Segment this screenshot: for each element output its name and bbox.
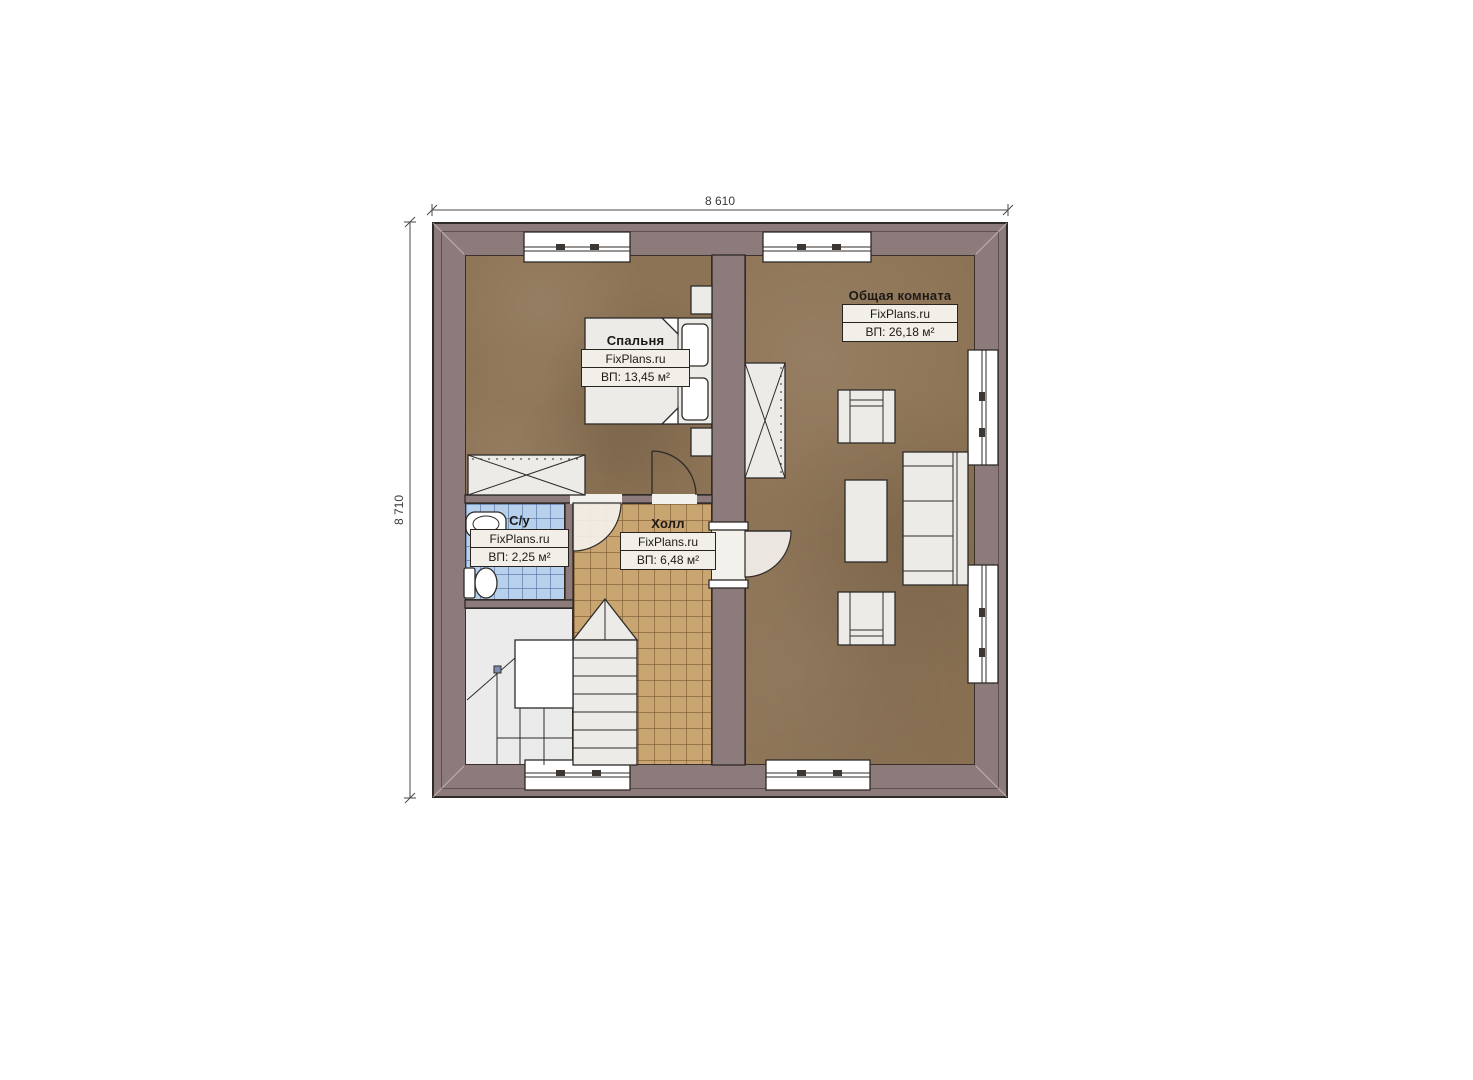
hall-name: Холл — [651, 516, 684, 531]
dimension-label-left: 8 710 — [392, 495, 406, 525]
bath-name: С/у — [509, 513, 530, 528]
bedroom-name: Спальня — [607, 333, 665, 348]
brand-label: FixPlans.ru — [581, 349, 690, 369]
living-name: Общая комната — [849, 288, 952, 303]
bedroom-area-label: ВП: 13,45 м² — [581, 367, 690, 387]
room-label-bedroom: Спальня FixPlans.ru ВП: 13,45 м² — [585, 333, 686, 387]
room-label-living: Общая комната FixPlans.ru ВП: 26,18 м² — [846, 288, 954, 342]
room-label-bath: С/у FixPlans.ru ВП: 2,25 м² — [474, 513, 565, 567]
living-area-label: ВП: 26,18 м² — [842, 322, 958, 342]
hall-area-label: ВП: 6,48 м² — [620, 550, 716, 570]
brand-label: FixPlans.ru — [620, 532, 716, 552]
floor-plan-canvas: Спальня FixPlans.ru ВП: 13,45 м² Общая к… — [0, 0, 1473, 1080]
stairs-area — [465, 608, 573, 765]
dimension-label-top: 8 610 — [705, 194, 735, 208]
bath-area-label: ВП: 2,25 м² — [470, 547, 569, 567]
brand-label: FixPlans.ru — [470, 529, 569, 549]
room-label-hall: Холл FixPlans.ru ВП: 6,48 м² — [624, 516, 712, 570]
brand-label: FixPlans.ru — [842, 304, 958, 324]
